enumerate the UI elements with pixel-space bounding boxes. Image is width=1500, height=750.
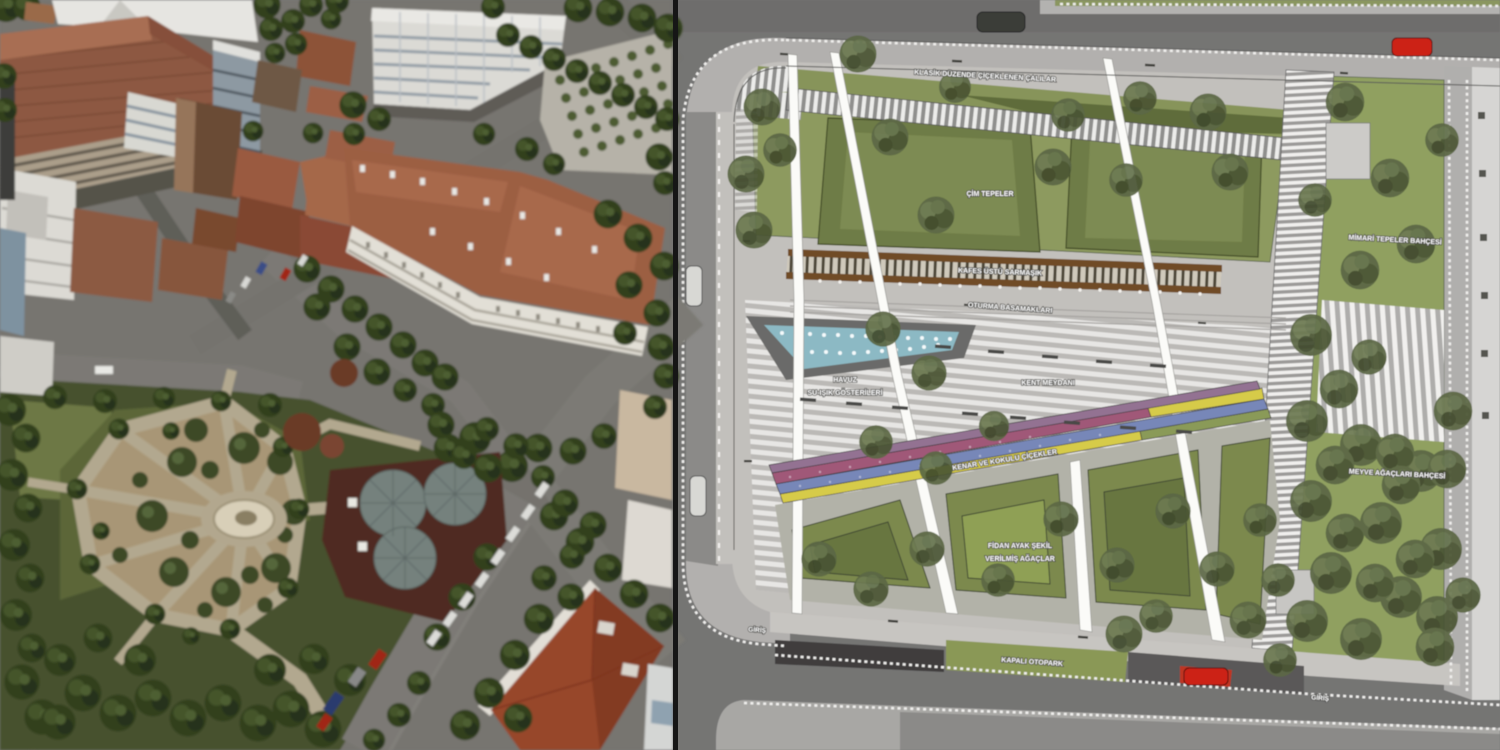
svg-text:HAVUZ: HAVUZ bbox=[833, 377, 857, 384]
svg-text:ÇİM TEPELER: ÇİM TEPELER bbox=[966, 190, 1013, 198]
svg-text:VERİLMİŞ AĞAÇLAR: VERİLMİŞ AĞAÇLAR bbox=[985, 554, 1055, 563]
svg-text:GİRİŞ: GİRİŞ bbox=[748, 625, 767, 634]
svg-text:SU-IŞIK GÖSTERİLERİ: SU-IŞIK GÖSTERİLERİ bbox=[807, 388, 882, 397]
svg-text:KENT MEYDANI: KENT MEYDANI bbox=[1021, 380, 1074, 387]
svg-text:FİDAN AYAK ŞEKİL: FİDAN AYAK ŞEKİL bbox=[988, 542, 1053, 550]
svg-text:GİRİŞ: GİRİŞ bbox=[1311, 693, 1330, 702]
